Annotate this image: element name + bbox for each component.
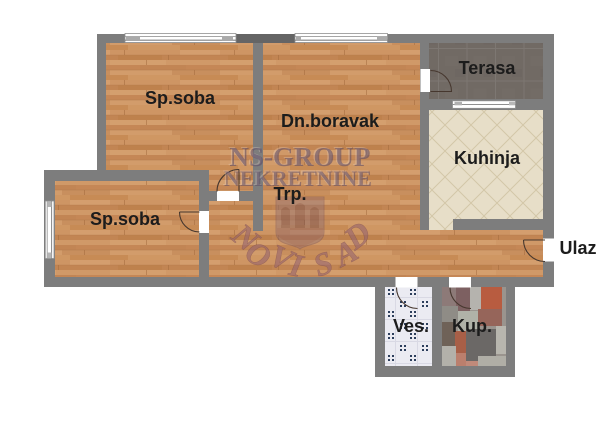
svg-text:Kuhinja: Kuhinja	[454, 148, 521, 168]
svg-text:Sp.soba: Sp.soba	[145, 88, 216, 108]
svg-text:Sp.soba: Sp.soba	[90, 209, 161, 229]
svg-text:Terasa: Terasa	[459, 58, 517, 78]
svg-text:Trp.: Trp.	[273, 184, 306, 204]
svg-text:Ulaz: Ulaz	[559, 238, 596, 258]
svg-text:Ves.: Ves.	[393, 316, 429, 336]
svg-text:Kup.: Kup.	[452, 316, 492, 336]
svg-text:Dn.boravak: Dn.boravak	[281, 111, 380, 131]
